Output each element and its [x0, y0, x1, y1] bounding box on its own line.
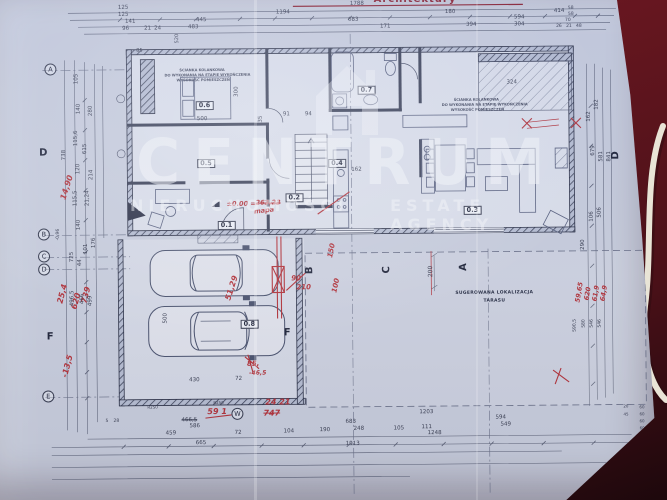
- dim-label: 125: [118, 13, 129, 19]
- photo-of-floor-plan: ABCDEWDFFBCAD0.60.50.70.40.20.10.30.814,…: [0, 0, 667, 500]
- dim-label: 28: [113, 420, 119, 425]
- dim-label: 60: [639, 419, 644, 423]
- dim-label: 500: [164, 313, 170, 324]
- red-annotation: ±0.00 =: [227, 201, 256, 208]
- dim-label: 594: [514, 15, 525, 21]
- dim-label: 546: [591, 319, 596, 328]
- room-label: 0.3: [464, 206, 482, 215]
- dim-label: 615: [83, 144, 89, 155]
- dim-label: 546: [599, 319, 604, 328]
- dim-label: 683: [348, 18, 359, 24]
- red-annotation: -46,5: [249, 371, 266, 377]
- dim-label: 115,5: [73, 190, 79, 206]
- dim-label: 200: [428, 266, 434, 278]
- dim-label: 581: [599, 151, 605, 162]
- dim-label: 45: [623, 412, 628, 416]
- dim-label: 190: [320, 428, 331, 434]
- dim-label: 580: [583, 319, 588, 328]
- section-marker: D: [39, 148, 47, 159]
- dim-label: 500: [197, 117, 208, 123]
- red-annotation: 24 21: [265, 398, 290, 407]
- red-annotation: 747: [263, 409, 280, 418]
- grid-bubble: C: [38, 250, 50, 262]
- section-marker: F: [284, 328, 291, 339]
- dim-label: 594: [495, 416, 506, 422]
- labels-layer: ABCDEWDFFBCAD0.60.50.70.40.20.10.30.814,…: [0, 0, 667, 500]
- dim-label: 60: [639, 405, 644, 409]
- section-marker: F: [47, 332, 54, 343]
- dim-label: 24: [154, 26, 161, 32]
- dim-label: 290: [581, 239, 587, 250]
- red-annotation: 64,9: [599, 285, 608, 302]
- note-label: WYSOKOŚĆ POMIESZCZEŃ: [451, 109, 504, 113]
- dim-label: 120: [76, 164, 82, 175]
- dim-label: 725: [70, 252, 76, 263]
- dim-label: 21: [566, 25, 572, 30]
- room-label: 0.2: [286, 193, 304, 202]
- dim-label: 101: [84, 244, 90, 255]
- grid-bubble: B: [38, 228, 50, 240]
- dim-label: 430: [189, 378, 200, 384]
- dim-label: 35: [259, 116, 265, 123]
- dim-label: -0,96: [57, 229, 62, 241]
- dim-label: 115,6: [74, 130, 80, 146]
- dim-label: 96: [122, 27, 129, 33]
- dim-label: 162: [351, 168, 362, 174]
- dim-label: 72: [235, 377, 242, 383]
- dim-label: 5: [105, 420, 108, 425]
- dim-label: 1248: [428, 431, 442, 437]
- dim-label: 520: [175, 34, 180, 44]
- room-label: 0.6: [196, 101, 214, 110]
- dim-label: 1913: [346, 442, 360, 448]
- dim-label: 1194: [276, 10, 290, 16]
- dim-label: 72: [235, 431, 242, 437]
- red-annotation: 85,: [247, 361, 259, 368]
- dim-label: 44: [78, 259, 84, 266]
- dim-label: 180: [445, 10, 456, 16]
- terrace-note: TARASU: [483, 300, 505, 305]
- dim-label: 48: [576, 25, 582, 30]
- dim-label: 176: [92, 238, 98, 249]
- room-label: 0.4: [328, 159, 346, 168]
- dim-label: 125: [118, 6, 129, 12]
- red-annotation: 210: [296, 284, 311, 291]
- dim-label: 182: [595, 99, 601, 110]
- dim-label: 140: [77, 220, 83, 231]
- section-marker: B: [305, 267, 316, 275]
- grid-bubble: A: [44, 63, 56, 75]
- red-annotation: 51,29: [224, 275, 240, 302]
- dim-label: 94: [305, 112, 312, 118]
- dim-label: 394: [466, 23, 477, 29]
- dim-label: 459: [166, 431, 177, 437]
- dim-label: 85: [136, 49, 142, 54]
- dim-label: 679: [591, 145, 597, 156]
- dim-label: 665: [196, 441, 207, 447]
- dim-label: 683: [345, 420, 356, 426]
- dim-label: 499: [88, 296, 94, 307]
- dim-label: 105: [394, 426, 405, 432]
- dim-label: 483: [188, 25, 199, 31]
- dim-label: 549: [501, 422, 512, 428]
- red-annotation: 25,4: [56, 283, 69, 304]
- note-label: WYSOKOŚĆ POMIESZCZEŃ: [177, 79, 230, 83]
- dim-label: 841: [607, 151, 613, 162]
- section-marker: A: [459, 263, 470, 271]
- dim-label: 21,24: [85, 190, 91, 206]
- dim-label: 590,5: [574, 319, 579, 332]
- sheet-title: Architektury: [285, 0, 545, 5]
- dim-label: 466: [80, 294, 86, 305]
- room-label: 0.1: [218, 221, 236, 230]
- section-marker: C: [382, 266, 393, 273]
- dim-label: 91: [283, 112, 290, 118]
- dim-label: 214: [89, 170, 95, 181]
- dim-label: R250: [213, 401, 223, 405]
- dim-label: 300: [235, 86, 241, 97]
- dim-label: 496,5: [70, 290, 76, 306]
- dim-label: 141: [125, 20, 136, 26]
- dim-label: 506: [598, 207, 604, 218]
- dim-label: 60: [639, 412, 644, 416]
- grid-bubble: W: [231, 408, 243, 420]
- dim-label: 140: [77, 104, 83, 115]
- blueprint-paper-sheet: ABCDEWDFFBCAD0.60.50.70.40.20.10.30.814,…: [0, 0, 667, 500]
- terrace-note: SUGEROWANA LOKALIZACJA: [455, 291, 533, 296]
- dim-label: 21: [144, 27, 151, 33]
- red-annotation: -13,5: [61, 354, 75, 378]
- dim-label: 324: [507, 80, 518, 86]
- red-annotation: 59 1: [207, 408, 227, 417]
- red-annotation: 100: [331, 278, 341, 294]
- room-label: 0.8: [241, 320, 259, 329]
- dim-label: 1203: [419, 410, 433, 416]
- red-annotation: 90: [291, 275, 301, 282]
- dim-label: 105: [74, 74, 80, 85]
- dim-label: 171: [380, 24, 391, 30]
- dim-label: 26: [556, 25, 562, 30]
- red-annotation: 150: [327, 243, 337, 259]
- dim-label: 586: [190, 424, 201, 430]
- red-annotation: mapa: [254, 206, 275, 215]
- dim-label: R250: [147, 406, 157, 410]
- dim-label: 445: [196, 18, 207, 24]
- dim-label: 304: [514, 22, 525, 28]
- dim-label: 248: [354, 427, 365, 433]
- room-label: 0.5: [197, 159, 215, 168]
- dim-label: 162: [587, 111, 593, 122]
- grid-bubble: D: [38, 263, 50, 275]
- dim-label: 106: [590, 211, 596, 222]
- room-label: 0.7: [358, 86, 376, 95]
- dim-label: 414: [554, 9, 565, 15]
- dim-label: 738: [62, 150, 68, 161]
- dim-label: 104: [284, 429, 295, 435]
- dim-label: 280: [89, 106, 95, 117]
- grid-bubble: E: [42, 390, 54, 402]
- dim-label: 20: [623, 404, 628, 408]
